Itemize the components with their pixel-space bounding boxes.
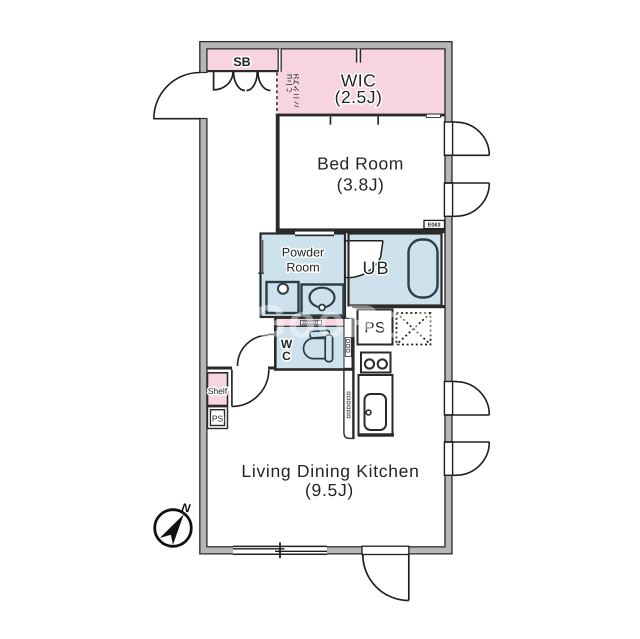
svg-text:Powder: Powder — [282, 246, 324, 260]
svg-text:PS: PS — [212, 414, 224, 424]
svg-text:SB: SB — [233, 55, 250, 69]
svg-text:Bed Room: Bed Room — [317, 154, 404, 174]
svg-text:Living Dining Kitchen: Living Dining Kitchen — [241, 461, 419, 481]
svg-text:(9.5J): (9.5J) — [305, 480, 354, 500]
svg-text:(2.5J): (2.5J) — [335, 87, 383, 107]
svg-text:Shelf: Shelf — [208, 386, 228, 396]
svg-text:E063: E063 — [428, 223, 441, 229]
svg-text:GooRoo: GooRoo — [251, 295, 438, 347]
svg-text:Room: Room — [286, 261, 319, 275]
svg-text:C: C — [282, 349, 291, 363]
svg-text:UB: UB — [362, 258, 389, 278]
svg-text:(3.8J): (3.8J) — [337, 175, 385, 195]
